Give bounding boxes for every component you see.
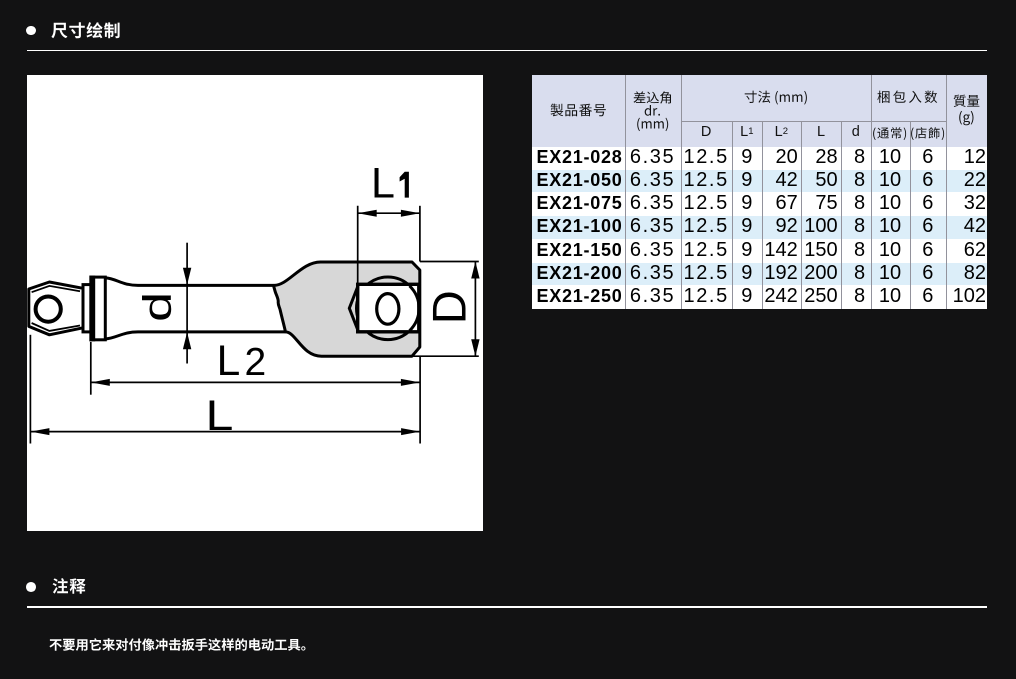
svg-text:L: L (371, 160, 395, 208)
svg-text:D: D (423, 290, 476, 324)
svg-text:L: L (206, 392, 234, 440)
svg-text:2: 2 (245, 341, 267, 384)
svg-text:d: d (136, 292, 181, 322)
svg-text:L: L (217, 338, 241, 385)
